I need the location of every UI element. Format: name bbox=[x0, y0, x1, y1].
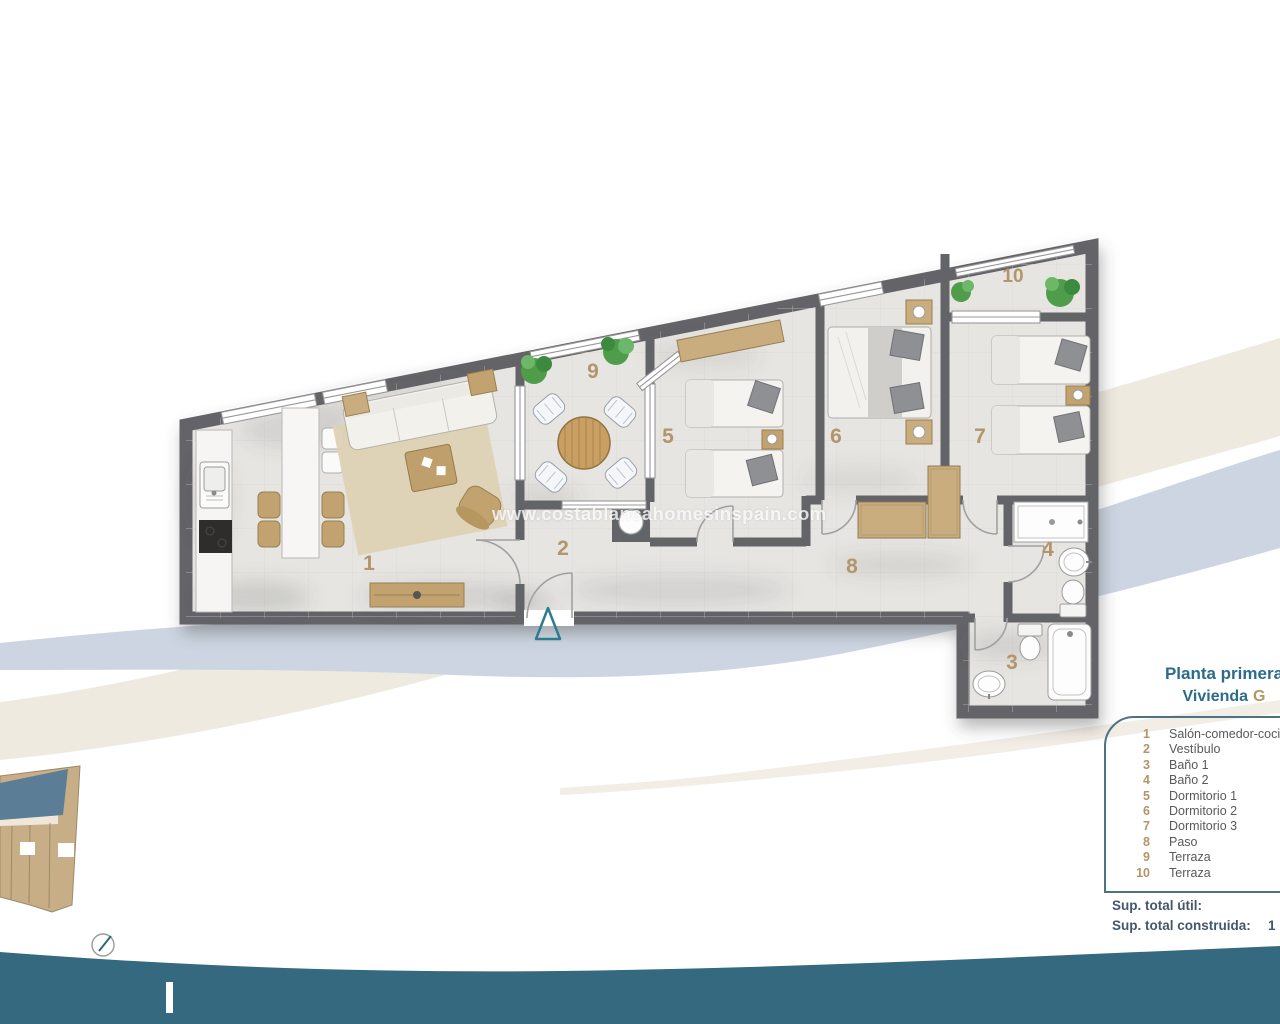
legend-label: Baño 2 bbox=[1169, 773, 1209, 788]
nightstand bbox=[1066, 386, 1090, 405]
toilet bbox=[1018, 624, 1042, 660]
double-bed bbox=[828, 327, 931, 418]
nightstand bbox=[906, 420, 932, 444]
legend-label: Dormitorio 2 bbox=[1169, 804, 1237, 819]
legend-row: 9Terraza bbox=[1106, 850, 1280, 865]
total-util-row: Sup. total útil: bbox=[1112, 896, 1280, 916]
nightstand bbox=[906, 300, 932, 324]
round-table bbox=[558, 415, 610, 471]
room-number-label: 1 bbox=[363, 552, 375, 575]
unit-letter: G bbox=[1253, 688, 1265, 705]
legend-label: Paso bbox=[1169, 835, 1198, 850]
room-legend: 1Salón-comedor-cocina 2Vestíbulo 3Baño 1… bbox=[1104, 716, 1280, 893]
single-bed bbox=[686, 380, 783, 427]
room-number-label: 10 bbox=[1002, 266, 1023, 287]
totals-panel: Sup. total útil: Sup. total construida: … bbox=[1112, 896, 1280, 936]
shower bbox=[1014, 502, 1088, 542]
legend-number: 9 bbox=[1106, 850, 1150, 865]
room-number-label: 4 bbox=[1042, 538, 1054, 561]
unit-title: ViviendaG bbox=[1104, 688, 1280, 706]
nightstand bbox=[762, 430, 783, 449]
legend-row: 4Baño 2 bbox=[1106, 773, 1280, 788]
kitchen-sink bbox=[200, 462, 229, 508]
legend-number: 8 bbox=[1106, 835, 1150, 850]
legend-number: 7 bbox=[1106, 819, 1150, 834]
legend-label: Baño 1 bbox=[1169, 758, 1209, 773]
site-patio bbox=[58, 843, 74, 857]
single-bed bbox=[686, 450, 783, 497]
room-number-label: 7 bbox=[974, 425, 986, 448]
unit-title-prefix: Vivienda bbox=[1183, 688, 1249, 705]
legend-label: Dormitorio 1 bbox=[1169, 789, 1237, 804]
room-number-label: 9 bbox=[587, 360, 599, 383]
terrace9-glassdoor-living bbox=[515, 386, 525, 480]
legend-row: 10Terraza bbox=[1106, 866, 1280, 881]
legend-row: 2Vestíbulo bbox=[1106, 742, 1280, 757]
room-number-label: 5 bbox=[662, 425, 674, 448]
single-bed bbox=[992, 336, 1090, 384]
total-construida-label: Sup. total construida: bbox=[1112, 918, 1251, 933]
total-construida-value: 1 bbox=[1268, 916, 1276, 936]
kitchen bbox=[196, 430, 232, 612]
stove bbox=[199, 520, 232, 553]
island-dining-table bbox=[282, 408, 319, 558]
room-number-label: 2 bbox=[557, 537, 569, 560]
site-key-plan bbox=[0, 766, 80, 912]
logo-mark bbox=[166, 982, 173, 1013]
side-table bbox=[342, 392, 369, 416]
bottom-wave bbox=[0, 946, 1280, 1024]
pillow bbox=[746, 454, 778, 486]
legend-row: 1Salón-comedor-cocina bbox=[1106, 727, 1280, 742]
room-number-label: 6 bbox=[830, 425, 842, 448]
legend-number: 4 bbox=[1106, 773, 1150, 788]
legend-number: 10 bbox=[1106, 866, 1150, 881]
legend-number: 6 bbox=[1106, 804, 1150, 819]
plan-title: Planta primera bbox=[1104, 664, 1280, 684]
room-number-label: 3 bbox=[1006, 651, 1018, 674]
bathtub bbox=[1048, 624, 1091, 700]
legend-number: 5 bbox=[1106, 789, 1150, 804]
tv-unit bbox=[370, 583, 464, 607]
coffee-table bbox=[405, 444, 458, 492]
legend-label: Vestíbulo bbox=[1169, 742, 1220, 757]
compass-icon bbox=[92, 934, 114, 956]
legend-row: 6Dormitorio 2 bbox=[1106, 804, 1280, 819]
legend-label: Terraza bbox=[1169, 866, 1211, 881]
legend-number: 3 bbox=[1106, 758, 1150, 773]
toilet bbox=[1060, 580, 1086, 617]
floorplan-page: 1 2 3 4 5 6 7 8 9 10 www.costablancahome… bbox=[0, 0, 1280, 1024]
legend-label: Terraza bbox=[1169, 850, 1211, 865]
legend-row: 8Paso bbox=[1106, 835, 1280, 850]
pillow bbox=[1054, 412, 1085, 443]
legend-row: 7Dormitorio 3 bbox=[1106, 819, 1280, 834]
legend-row: 5Dormitorio 1 bbox=[1106, 789, 1280, 804]
side-table bbox=[467, 369, 497, 396]
bedroom3-window bbox=[952, 311, 1040, 323]
room-number-label: 8 bbox=[846, 555, 858, 578]
pillow bbox=[890, 383, 924, 414]
legend-number: 2 bbox=[1106, 742, 1150, 757]
pillow bbox=[890, 330, 924, 361]
legend-label: Salón-comedor-cocina bbox=[1169, 727, 1280, 742]
single-bed bbox=[992, 406, 1090, 454]
legend-label: Dormitorio 3 bbox=[1169, 819, 1237, 834]
legend-number: 1 bbox=[1106, 727, 1150, 742]
total-construida-row: Sup. total construida: bbox=[1112, 916, 1280, 936]
site-patio bbox=[20, 842, 35, 855]
total-util-label: Sup. total útil: bbox=[1112, 898, 1202, 913]
legend-row: 3Baño 1 bbox=[1106, 758, 1280, 773]
terrace9-glassdoor-bedroom1 bbox=[645, 384, 655, 478]
watermark: www.costablancahomesinspain.com bbox=[492, 503, 827, 525]
